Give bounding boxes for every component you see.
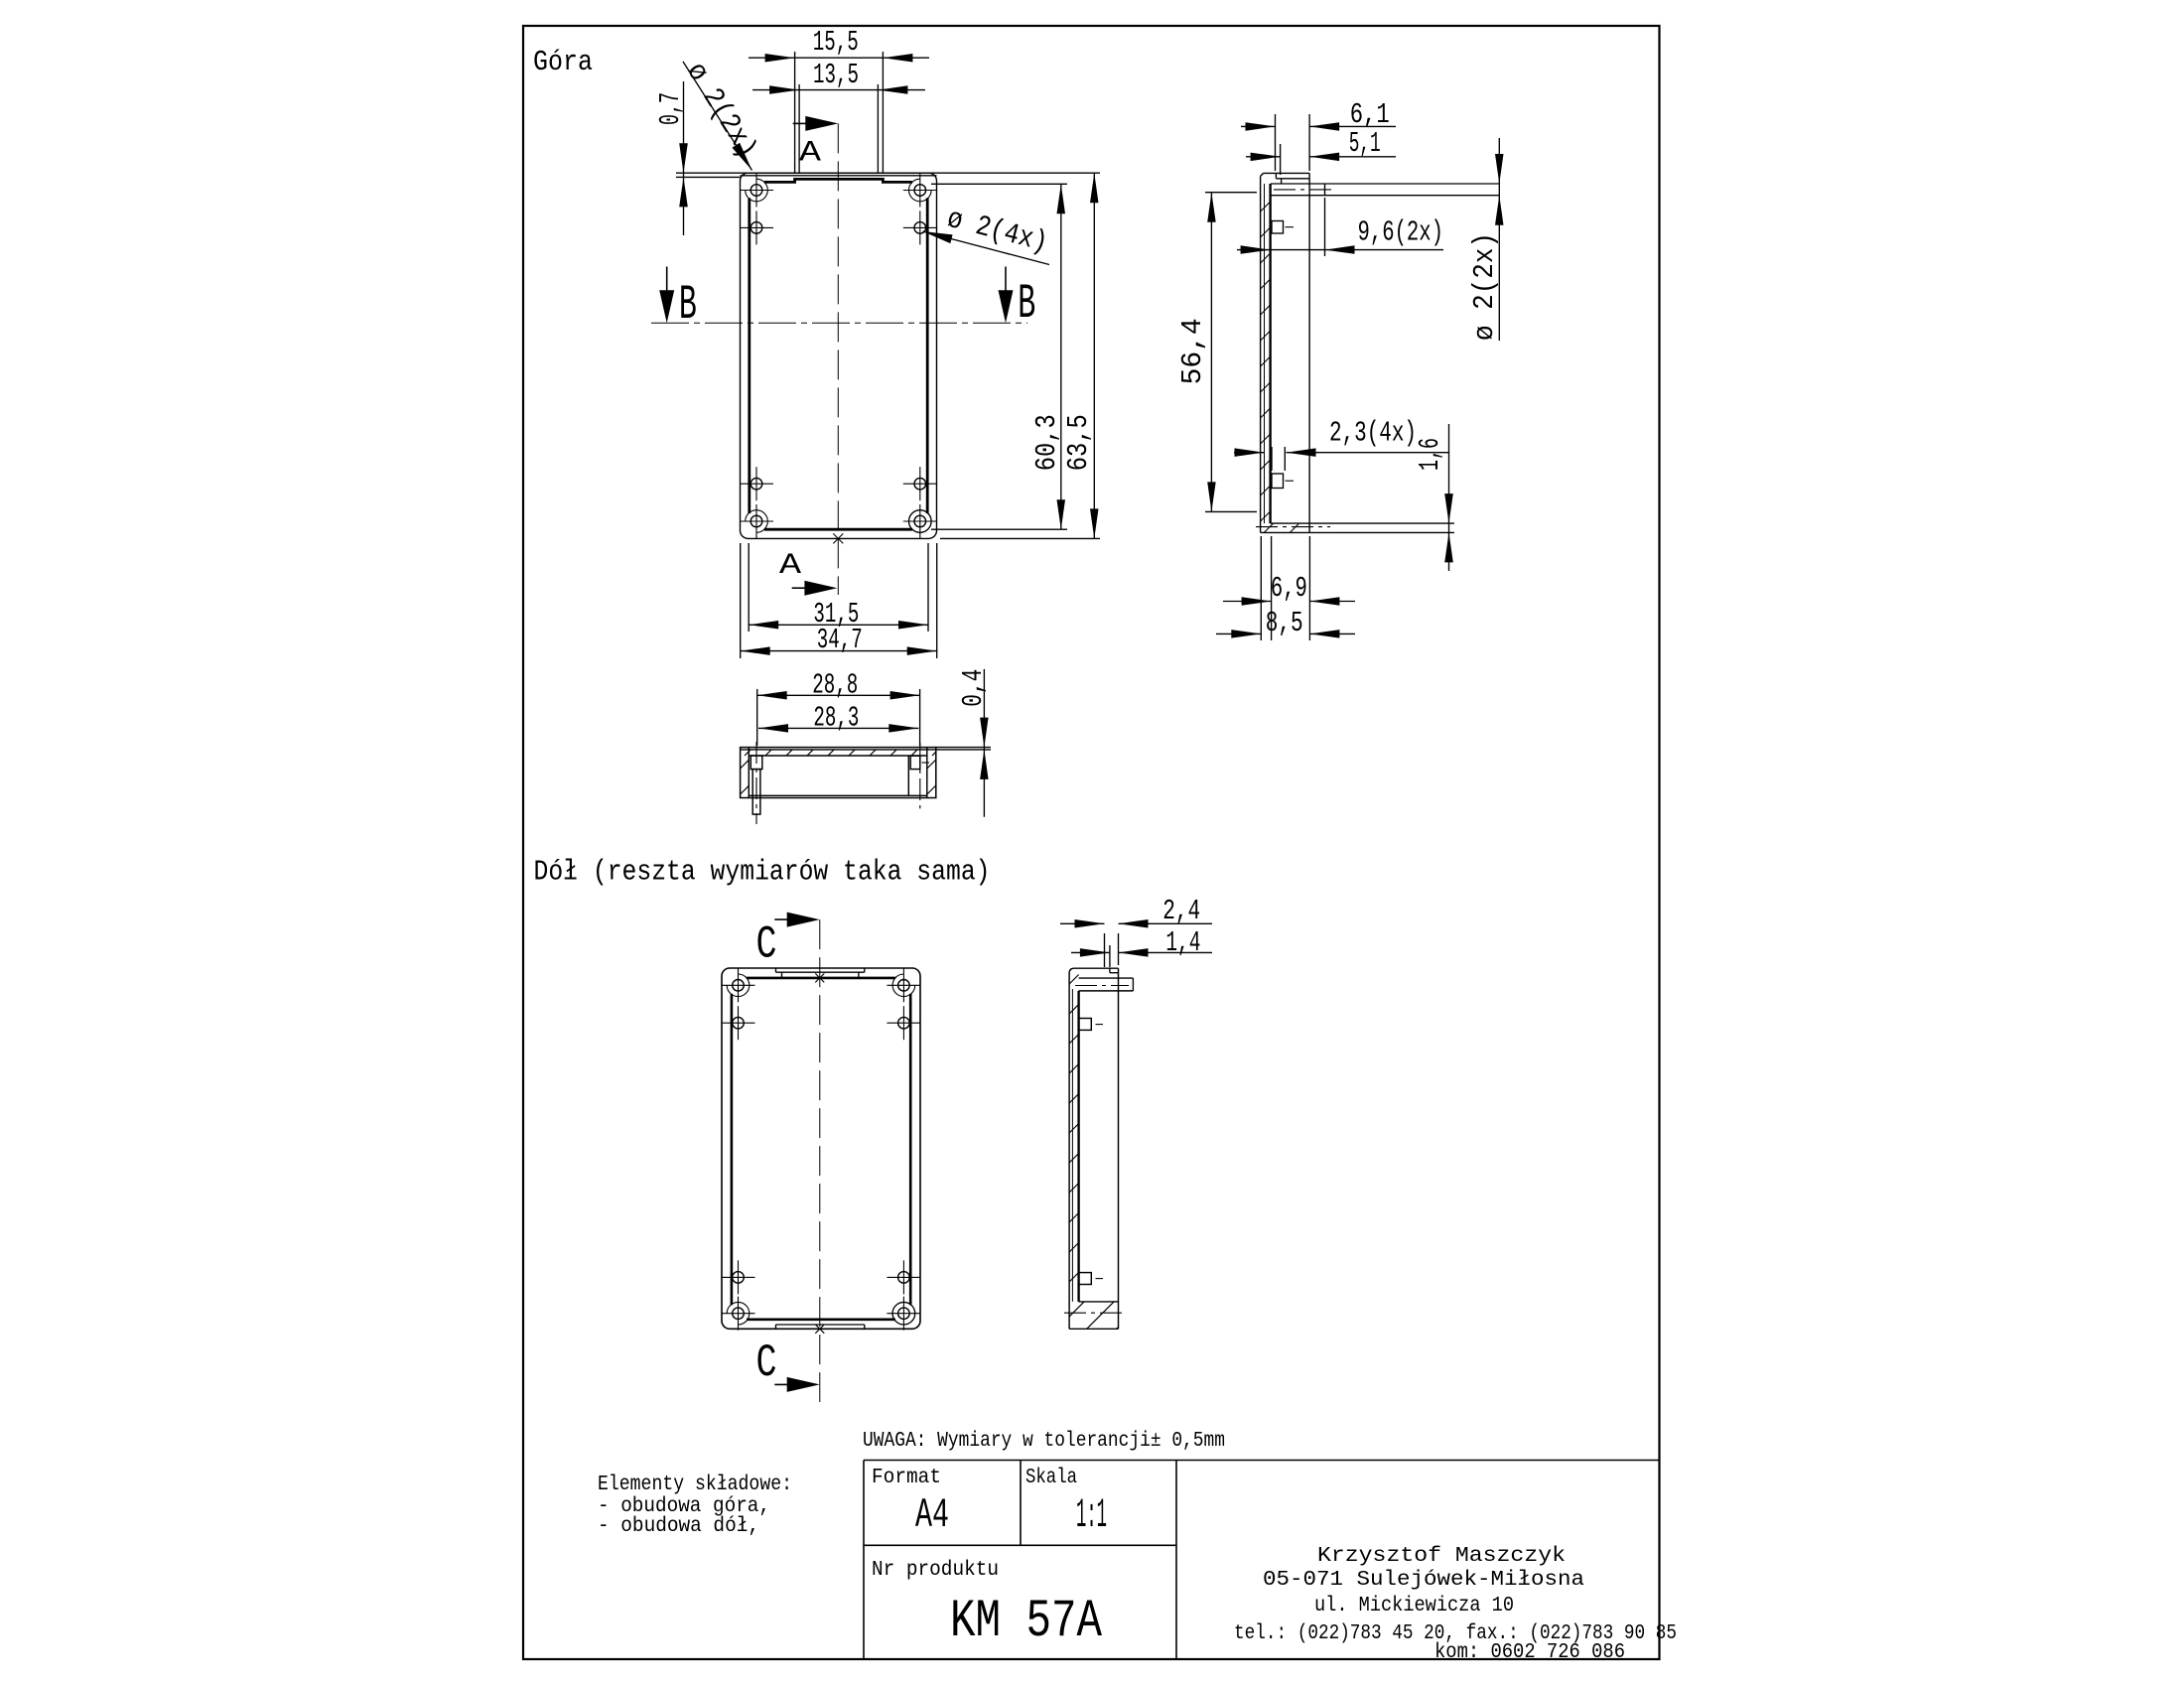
svg-text:56,4: 56,4 bbox=[1176, 318, 1209, 384]
svg-text:6,9: 6,9 bbox=[1271, 572, 1307, 605]
svg-text:Góra: Góra bbox=[533, 46, 593, 78]
svg-text:Elementy składowe:: Elementy składowe: bbox=[598, 1473, 792, 1496]
svg-text:2,4: 2,4 bbox=[1162, 895, 1200, 927]
svg-text:ul. Mickiewicza 10: ul. Mickiewicza 10 bbox=[1314, 1594, 1514, 1617]
svg-text:A4: A4 bbox=[915, 1491, 949, 1539]
svg-text:1,4: 1,4 bbox=[1165, 926, 1200, 959]
svg-text:kom: 0602 726 086: kom: 0602 726 086 bbox=[1434, 1640, 1625, 1664]
svg-text:Dół (reszta wymiarów taka sama: Dół (reszta wymiarów taka sama) bbox=[534, 856, 991, 889]
svg-text:Format: Format bbox=[872, 1466, 941, 1489]
svg-text:KM 57A: KM 57A bbox=[950, 1592, 1102, 1652]
svg-text:28,8: 28,8 bbox=[812, 669, 858, 702]
svg-text:Nr produktu: Nr produktu bbox=[872, 1558, 999, 1582]
svg-text:60,3: 60,3 bbox=[1030, 414, 1063, 471]
svg-text:ø 2(2x): ø 2(2x) bbox=[1468, 232, 1501, 341]
svg-text:5,1: 5,1 bbox=[1349, 127, 1381, 160]
svg-text:C: C bbox=[756, 919, 777, 971]
svg-text:Krzysztof Maszczyk: Krzysztof Maszczyk bbox=[1317, 1544, 1566, 1568]
svg-text:B: B bbox=[679, 277, 697, 333]
svg-text:13,5: 13,5 bbox=[813, 59, 859, 91]
svg-text:A: A bbox=[779, 549, 801, 583]
svg-text:1:1: 1:1 bbox=[1076, 1491, 1107, 1539]
svg-text:15,5: 15,5 bbox=[813, 26, 859, 59]
svg-text:2,3(4x): 2,3(4x) bbox=[1329, 416, 1417, 449]
svg-text:05-071 Sulejówek-Miłosna: 05-071 Sulejówek-Miłosna bbox=[1263, 1568, 1584, 1592]
svg-text:- obudowa dół,: - obudowa dół, bbox=[598, 1514, 759, 1538]
svg-text:8,5: 8,5 bbox=[1266, 607, 1303, 639]
svg-text:28,3: 28,3 bbox=[813, 702, 859, 735]
svg-text:0,4: 0,4 bbox=[957, 669, 990, 707]
svg-text:9,6(2x): 9,6(2x) bbox=[1358, 215, 1444, 248]
svg-text:Skala: Skala bbox=[1025, 1466, 1077, 1489]
svg-text:A: A bbox=[799, 137, 821, 171]
svg-text:0,7: 0,7 bbox=[654, 92, 687, 125]
svg-text:UWAGA: Wymiary w tolerancji± 0: UWAGA: Wymiary w tolerancji± 0,5mm bbox=[863, 1429, 1225, 1453]
svg-text:63,5: 63,5 bbox=[1062, 414, 1095, 471]
svg-text:1,6: 1,6 bbox=[1414, 438, 1446, 471]
svg-text:B: B bbox=[1018, 276, 1035, 332]
svg-text:C: C bbox=[756, 1337, 777, 1389]
